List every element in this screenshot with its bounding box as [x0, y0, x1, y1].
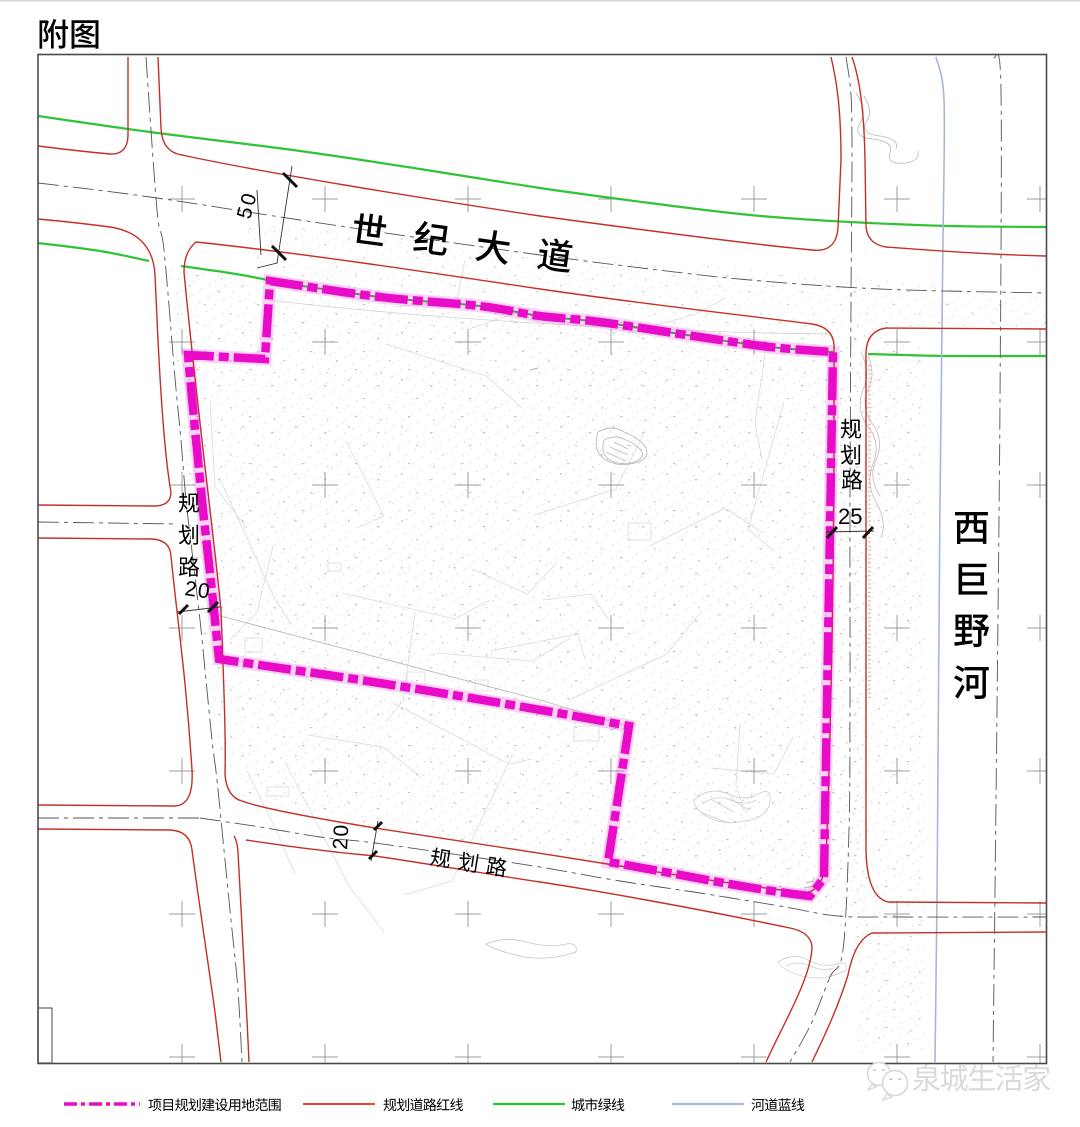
svg-text:25: 25 — [838, 504, 862, 529]
svg-text:20: 20 — [183, 577, 212, 603]
svg-text:20: 20 — [329, 823, 353, 851]
